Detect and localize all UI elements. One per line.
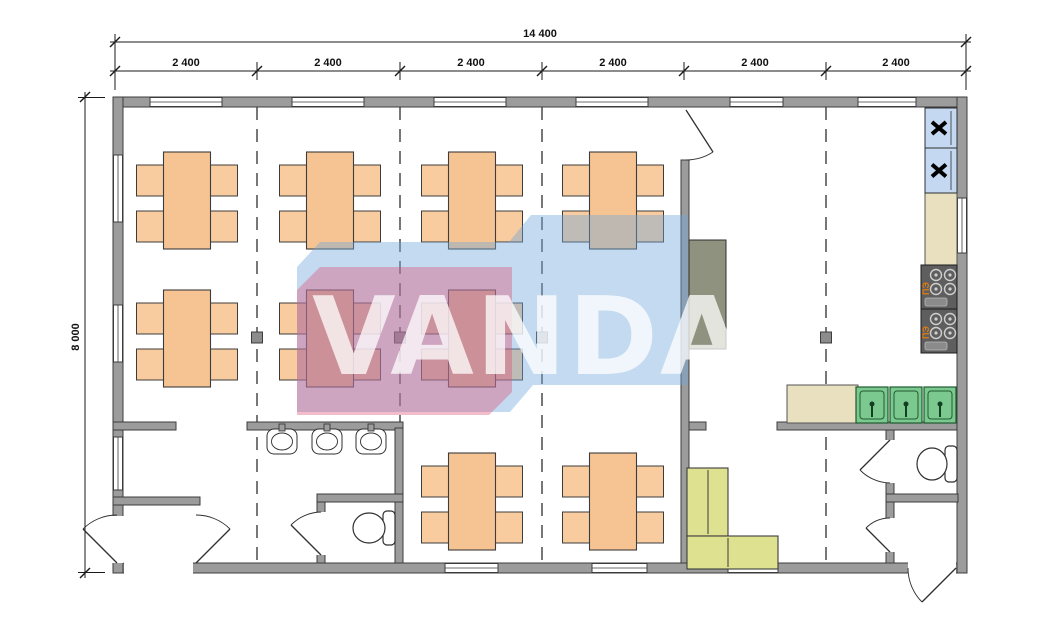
floor-plan-page: 14 400 2 400 2 400 2 400 2 400 2 400 2 4… bbox=[0, 0, 1047, 629]
wall-wc-left bbox=[317, 494, 403, 502]
wall-wc-right bbox=[886, 494, 958, 502]
dim-label-height: 8 000 bbox=[70, 323, 82, 351]
chair bbox=[209, 165, 238, 196]
window bbox=[114, 437, 123, 490]
chair bbox=[422, 512, 451, 543]
floor-plan-drawing: 14 400 2 400 2 400 2 400 2 400 2 400 2 4… bbox=[0, 0, 1047, 629]
chair bbox=[209, 349, 238, 380]
window bbox=[958, 198, 967, 253]
dining-table-group bbox=[280, 152, 381, 249]
chair bbox=[422, 165, 451, 196]
table bbox=[164, 290, 211, 387]
oven-door bbox=[925, 298, 947, 306]
stove-label: ПЭ bbox=[921, 282, 931, 295]
chair bbox=[137, 211, 166, 242]
stove: ПЭ bbox=[921, 309, 957, 353]
wall-exterior-top bbox=[113, 97, 967, 107]
door-opening bbox=[124, 563, 193, 574]
table bbox=[307, 152, 354, 249]
door-entrance-left bbox=[83, 515, 117, 563]
dim-label-module: 2 400 bbox=[741, 57, 769, 69]
chair bbox=[494, 512, 523, 543]
wall-vestibule bbox=[113, 497, 200, 505]
window bbox=[434, 98, 506, 107]
window bbox=[292, 98, 364, 107]
door-opening bbox=[886, 440, 895, 483]
wall-exterior-bottom bbox=[113, 563, 967, 573]
chair bbox=[352, 165, 381, 196]
watermark-text: VANDA bbox=[312, 275, 745, 400]
chair bbox=[563, 466, 592, 497]
faucet-icon bbox=[368, 424, 374, 431]
fridge bbox=[925, 108, 957, 148]
door-opening bbox=[113, 516, 124, 563]
window bbox=[114, 155, 123, 222]
dim-label-module: 2 400 bbox=[314, 57, 342, 69]
kitchen-sink bbox=[890, 387, 922, 423]
table bbox=[449, 453, 496, 550]
dim-label-module: 2 400 bbox=[599, 57, 627, 69]
kitchen-counter-bottom bbox=[787, 385, 858, 423]
door-opening bbox=[317, 512, 326, 555]
table bbox=[590, 453, 637, 550]
faucet-icon bbox=[324, 424, 330, 431]
chair bbox=[280, 165, 309, 196]
dining-table-group bbox=[137, 152, 238, 249]
kitchen-sink bbox=[924, 387, 956, 423]
chair bbox=[635, 466, 664, 497]
chair bbox=[137, 303, 166, 334]
chair bbox=[635, 512, 664, 543]
chair bbox=[422, 466, 451, 497]
toilet bbox=[353, 511, 395, 545]
window bbox=[592, 564, 647, 573]
dining-table-group bbox=[422, 152, 523, 249]
column-marker bbox=[821, 332, 832, 343]
dining-table-group bbox=[422, 453, 523, 550]
dimension-top: 14 400 2 400 2 400 2 400 2 400 2 400 2 4… bbox=[110, 28, 971, 90]
window bbox=[150, 98, 222, 107]
dining-table-group bbox=[563, 453, 664, 550]
window bbox=[730, 98, 783, 107]
chair bbox=[422, 211, 451, 242]
table bbox=[164, 152, 211, 249]
dim-label-module: 2 400 bbox=[882, 57, 910, 69]
chair bbox=[635, 165, 664, 196]
door-opening bbox=[886, 518, 895, 552]
watermark: VANDA bbox=[297, 215, 745, 415]
fridge bbox=[925, 148, 957, 193]
faucet-icon bbox=[279, 424, 285, 431]
dining-table-group bbox=[137, 290, 238, 387]
kitchen-counter-right bbox=[925, 192, 957, 265]
chair bbox=[137, 165, 166, 196]
window bbox=[576, 98, 648, 107]
wall-interior bbox=[113, 422, 176, 430]
wall-interior bbox=[689, 422, 706, 430]
chair bbox=[494, 466, 523, 497]
dim-label-total: 14 400 bbox=[523, 28, 557, 40]
chair bbox=[209, 211, 238, 242]
sofa bbox=[687, 468, 778, 569]
chair bbox=[563, 165, 592, 196]
door-opening bbox=[908, 563, 956, 574]
window bbox=[114, 305, 123, 362]
stove: ПЭ bbox=[921, 265, 957, 309]
window bbox=[858, 98, 916, 107]
window bbox=[445, 564, 498, 573]
chair bbox=[563, 512, 592, 543]
chair bbox=[352, 211, 381, 242]
chair bbox=[209, 303, 238, 334]
dim-label-module: 2 400 bbox=[457, 57, 485, 69]
door-vestibule-left bbox=[196, 515, 230, 563]
dimension-left: 8 000 bbox=[70, 92, 105, 578]
chair bbox=[137, 349, 166, 380]
door-kitchen bbox=[686, 110, 713, 160]
oven-door bbox=[925, 342, 947, 350]
dim-label-module: 2 400 bbox=[172, 57, 200, 69]
column-marker bbox=[252, 332, 263, 343]
stove-label: ПЭ bbox=[921, 326, 931, 339]
chair bbox=[494, 165, 523, 196]
toilet bbox=[917, 446, 957, 482]
kitchen-sink bbox=[856, 387, 888, 423]
chair bbox=[280, 211, 309, 242]
table bbox=[449, 152, 496, 249]
